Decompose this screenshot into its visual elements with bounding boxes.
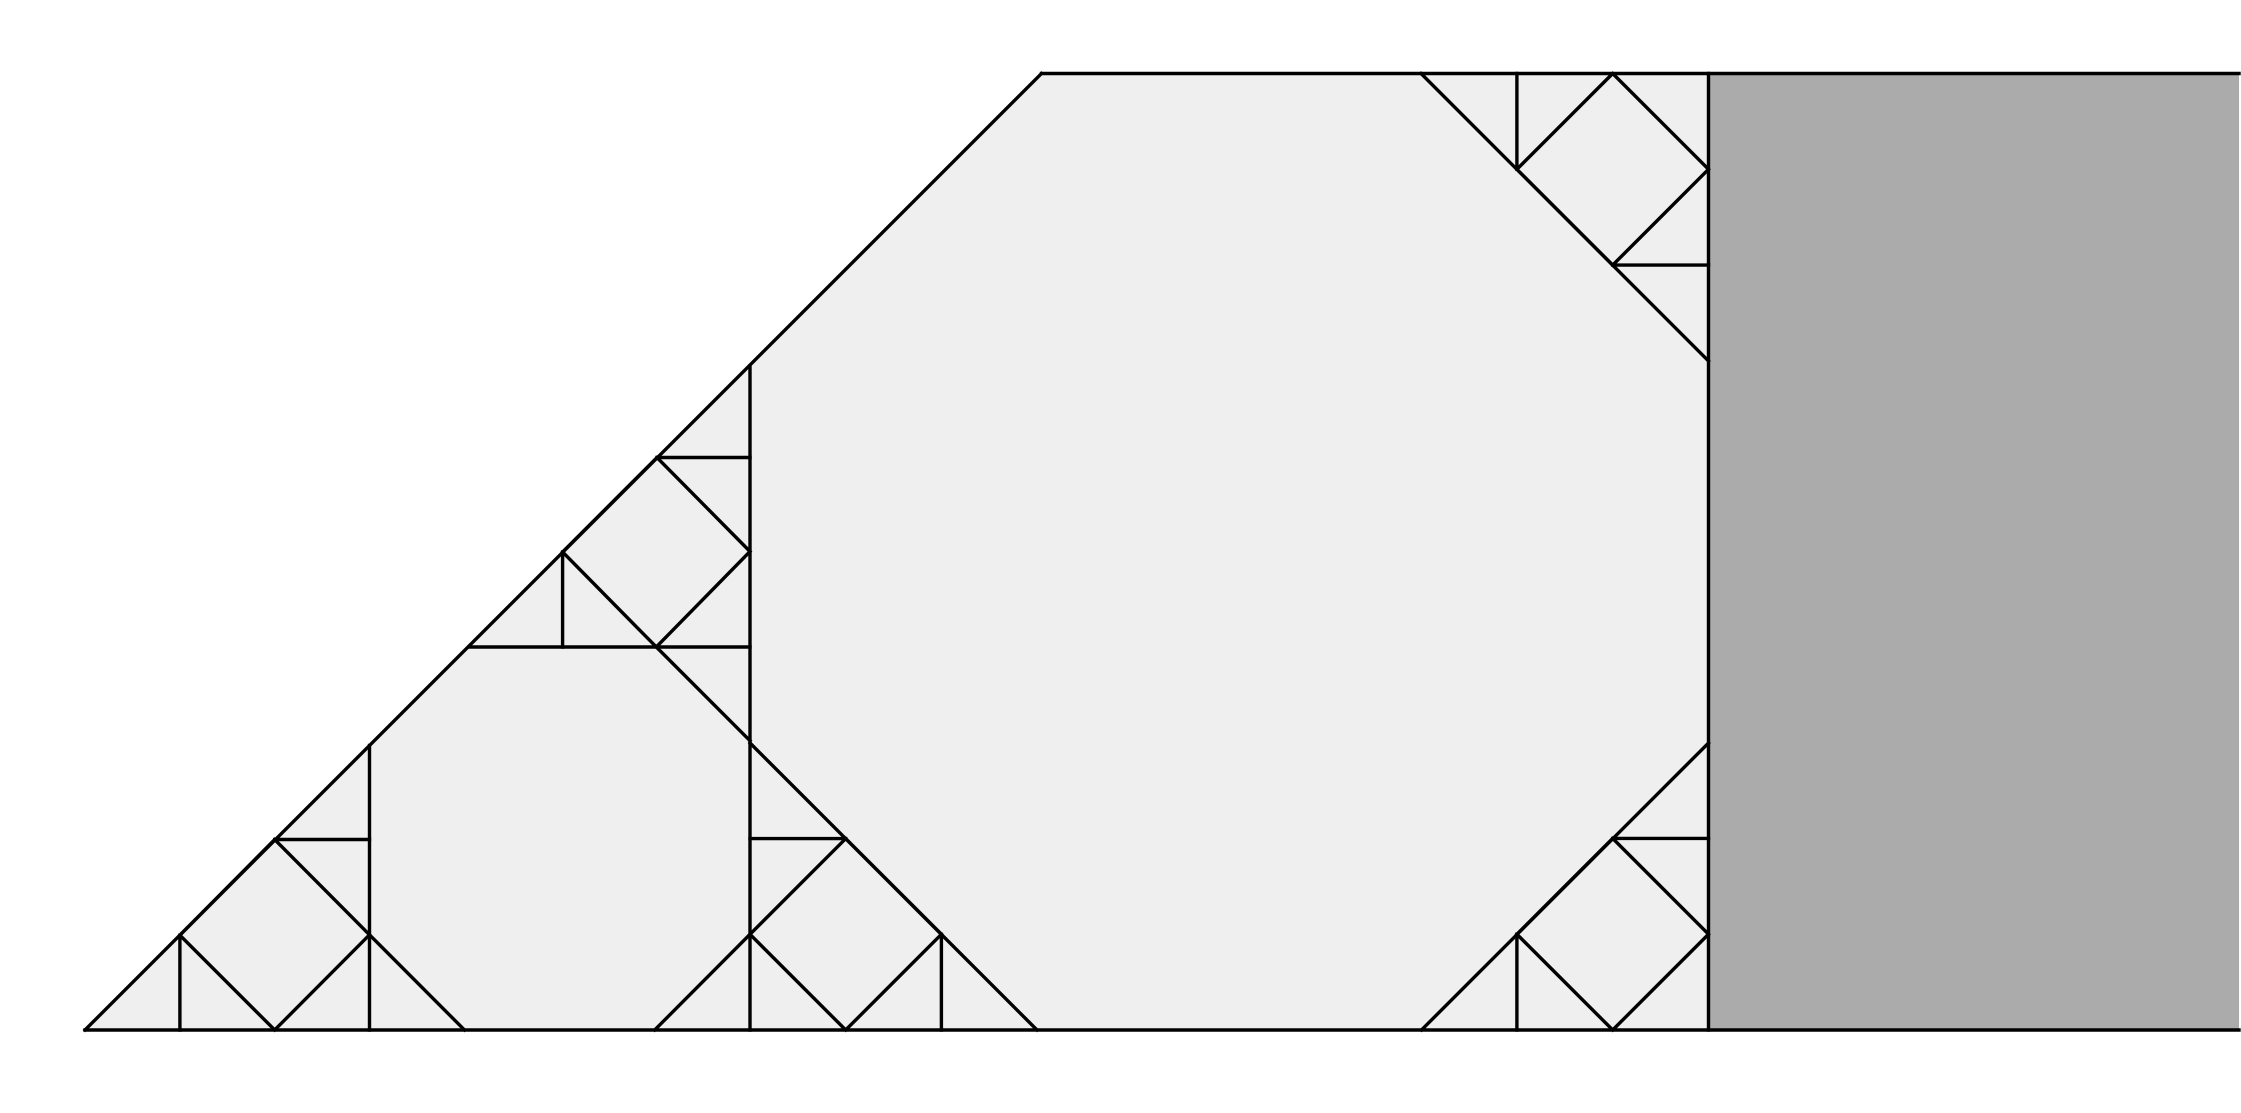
geometric-dissection-figure xyxy=(0,0,2241,1113)
gray-block xyxy=(1709,74,2240,1031)
figure-canvas xyxy=(0,0,2241,1113)
